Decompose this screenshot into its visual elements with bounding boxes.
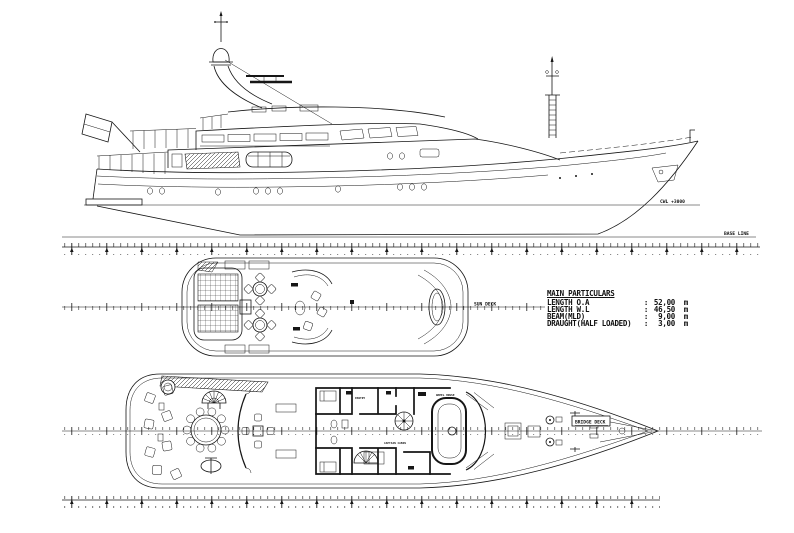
sun-deck-plan: SUN DECK: [62, 258, 545, 356]
hull-portholes: [147, 173, 593, 195]
wheelhouse-label: WHEEL HOUSE: [436, 393, 455, 397]
bridge-deck-label: BRIDGE DECK: [575, 420, 606, 426]
main-particulars-table: MAIN PARTICULARS LENGTH O.A : 52,00 m LE…: [547, 290, 707, 327]
aft-bench: [201, 458, 221, 474]
particulars-row-draught: DRAUGHT(HALF LOADED) : 3,00 m: [547, 320, 707, 327]
particulars-unit: m: [675, 320, 688, 327]
baseline-label: BASE LINE: [724, 231, 749, 237]
scale-ruler-bottom: [62, 496, 660, 508]
bar-counter: [202, 391, 226, 409]
maindeck-superstructure: [168, 139, 560, 169]
particulars-label: DRAUGHT(HALF LOADED): [547, 320, 642, 327]
foremast: [545, 56, 560, 138]
scale-ruler-main: [62, 243, 760, 255]
particulars-value: 3,00: [650, 320, 675, 327]
waterline-label: CWL +3000: [660, 199, 685, 205]
sundeck-profile: [200, 105, 445, 130]
satcom-dome: [213, 49, 229, 63]
tender-boat: [246, 152, 292, 167]
stair: [354, 451, 378, 463]
bridgedeck-superstructure: [196, 123, 478, 150]
drawing-canvas: CWL +3000 BASE LINE: [0, 0, 794, 533]
stair-hatch: [160, 376, 268, 392]
particulars-heading: MAIN PARTICULARS: [547, 290, 707, 297]
pantry-label: PANTRY: [355, 396, 365, 400]
particulars-colon: :: [642, 320, 650, 327]
yacht-general-arrangement-drawing: CWL +3000 BASE LINE: [0, 0, 794, 533]
aerial-wire: [225, 60, 332, 124]
profile-view: CWL +3000 BASE LINE: [62, 11, 756, 237]
stern-flag: [82, 114, 140, 152]
hull-profile: [86, 130, 698, 235]
bridge-deck-plan: PANTRY CAPTAIN CABIN WHEEL HOUSE BRIDGE …: [62, 374, 762, 488]
stair-hatch: [198, 262, 218, 272]
engine-vent-louver: [185, 152, 240, 169]
spiral-stair: [395, 412, 413, 430]
captain-cabin-label: CAPTAIN CABIN: [384, 441, 406, 445]
sun-deck-label: SUN DECK: [474, 302, 496, 308]
